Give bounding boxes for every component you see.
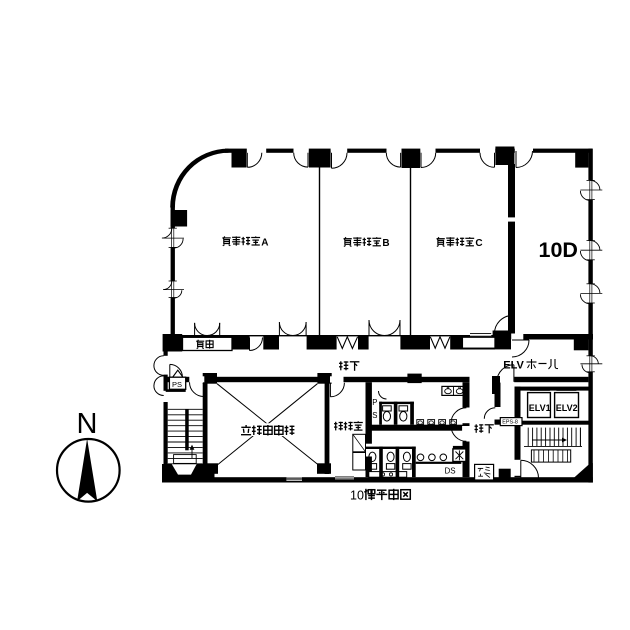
svg-text:10: 10 (350, 489, 364, 503)
svg-text:N: N (77, 408, 98, 440)
svg-text:B: B (382, 238, 389, 249)
svg-text:DS: DS (445, 467, 456, 476)
svg-text:PS: PS (172, 380, 182, 389)
svg-text:C: C (475, 238, 482, 249)
svg-text:EPS-8: EPS-8 (502, 420, 518, 426)
svg-text:P: P (372, 398, 377, 407)
svg-text:ELV2: ELV2 (556, 403, 578, 413)
svg-text:10D: 10D (539, 238, 578, 262)
svg-text:ELV1: ELV1 (529, 403, 551, 413)
svg-text:S: S (372, 411, 377, 420)
svg-text:ELV: ELV (503, 360, 524, 372)
svg-text:A: A (261, 237, 268, 248)
